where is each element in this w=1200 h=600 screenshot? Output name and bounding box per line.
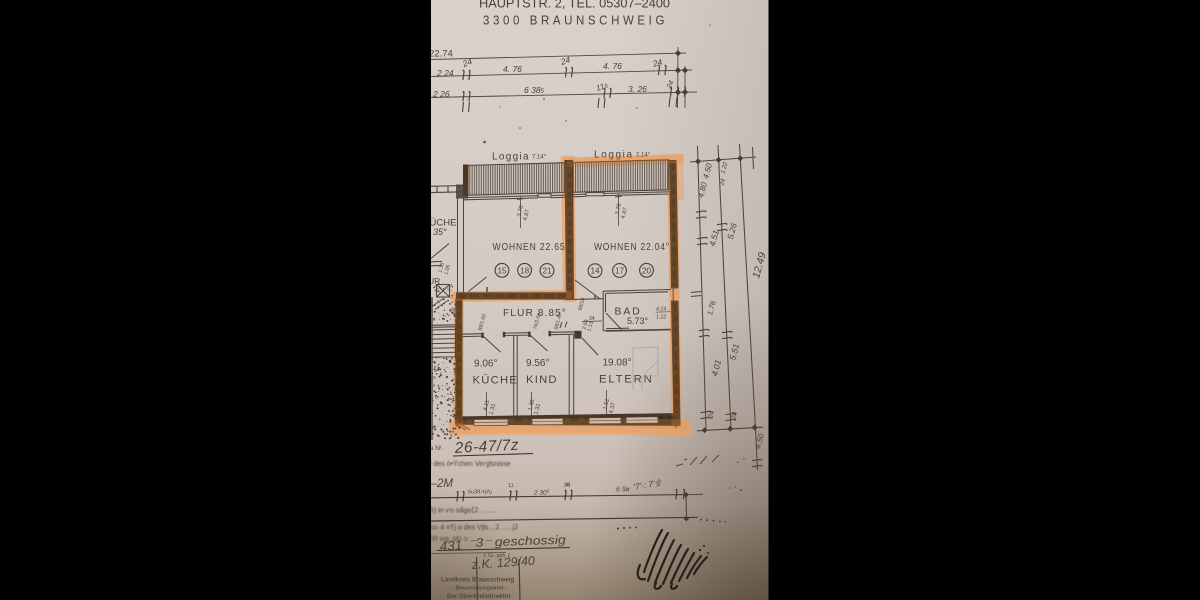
svg-text:Landkreis Braunschweig: Landkreis Braunschweig [441, 577, 514, 584]
svg-text:Loggia: Loggia [492, 152, 530, 163]
svg-text:22.74: 22.74 [429, 49, 453, 60]
svg-text:4. 76: 4. 76 [603, 61, 622, 71]
svg-text:2 24: 2 24 [436, 68, 454, 78]
svg-text:19.08°: 19.08° [603, 358, 632, 369]
svg-text:15: 15 [497, 266, 507, 275]
svg-text:KIND: KIND [526, 374, 558, 386]
svg-text:5υ39 ∕•(Λ): 5υ39 ∕•(Λ) [468, 490, 492, 496]
svg-text:Λѕ› 4 ¤Τϳ о des Vϳʦ…ʡ……ϳʡ: Λѕ› 4 ¤Τϳ о des Vϳʦ…ʡ……ϳʡ [428, 525, 518, 532]
svg-text:20: 20 [642, 266, 652, 275]
svg-text:35°: 35° [433, 227, 447, 237]
svg-text:ELTERN: ELTERN [599, 374, 654, 386]
svg-text:2 26: 2 26 [432, 89, 450, 99]
svg-text:7.14°: 7.14° [532, 155, 547, 161]
svg-text:6 9ϰ: 6 9ϰ [616, 487, 631, 494]
svg-text:;5) in ѵо оấgeξʡ……..: ;5) in ѵо оấgeξʡ…….. [428, 506, 496, 515]
svg-text:17: 17 [615, 267, 625, 276]
svg-text:WOHNEN 22.65: WOHNEN 22.65 [493, 242, 566, 253]
svg-text:3300 BRAUNSCHWEIG: 3300 BRAUNSCHWEIG [483, 13, 668, 28]
svg-text:18: 18 [520, 266, 530, 275]
svg-text:’–2M: ’–2M [428, 478, 453, 490]
svg-text:14: 14 [590, 267, 600, 276]
svg-text:38: 38 [564, 483, 570, 489]
svg-text:3. 26: 3. 26 [628, 84, 647, 94]
svg-text:HAUPTSTR. 2, TEL. 05307–2400: HAUPTSTR. 2, TEL. 05307–2400 [479, 0, 670, 11]
svg-text:- Bauordnungsamt -: - Bauordnungsamt - [452, 586, 507, 592]
svg-text:1ֻ1: 1ֻ1 [508, 483, 514, 489]
svg-text:J des ö•Ÿchen Veɾɿϳʦnisse: J des ö•Ÿchen Veɾɿϳʦnisse [428, 460, 511, 468]
svg-text:4. 76: 4. 76 [503, 64, 522, 74]
svg-text:431: 431 [439, 537, 463, 554]
svg-text:9.06°: 9.06° [474, 359, 497, 370]
svg-text:KÜCHE: KÜCHE [473, 375, 519, 387]
svg-text:9.56°: 9.56° [526, 358, 549, 369]
svg-text:WOHNEN 22.04°: WOHNEN 22.04° [594, 242, 670, 253]
svg-text:21: 21 [542, 267, 552, 276]
svg-text:1.12: 1.12 [656, 315, 666, 321]
svg-text:Der Oberkreisdirektor: Der Oberkreisdirektor [447, 593, 512, 600]
svg-text:5.73°: 5.73° [627, 316, 649, 326]
